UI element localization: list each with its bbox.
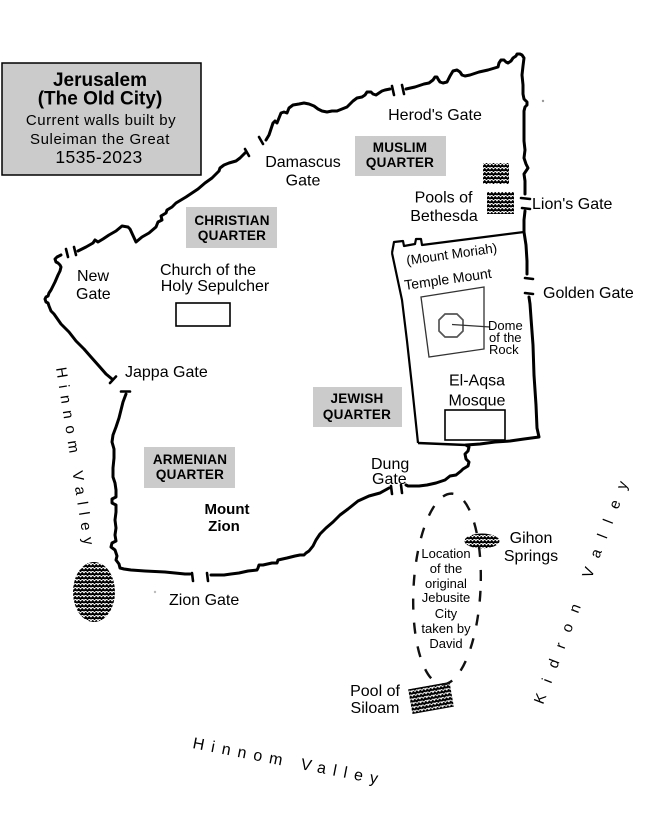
svg-text:Damascus: Damascus [265,154,341,171]
svg-text:(The Old City): (The Old City) [38,89,163,110]
svg-text:Gate: Gate [372,471,407,488]
svg-text:Rock: Rock [489,342,519,357]
svg-text:Zion Gate: Zion Gate [169,592,239,609]
svg-text:Gihon: Gihon [510,530,553,547]
svg-text:Bethesda: Bethesda [410,208,478,225]
svg-text:QUARTER: QUARTER [323,407,391,422]
svg-text:New: New [77,268,109,285]
svg-text:ARMENIAN: ARMENIAN [153,452,227,467]
svg-text:Mount: Mount [205,501,250,518]
svg-text:of the: of the [430,561,463,576]
svg-text:Lion's Gate: Lion's Gate [532,196,613,213]
svg-text:QUARTER: QUARTER [366,155,434,170]
svg-text:Mosque: Mosque [449,393,506,410]
svg-text:Golden Gate: Golden Gate [543,285,634,302]
svg-text:MUSLIM: MUSLIM [373,140,427,155]
svg-text:QUARTER: QUARTER [156,467,224,482]
svg-text:Pools of: Pools of [415,190,473,207]
svg-text:Gate: Gate [76,286,111,303]
svg-text:Gate: Gate [286,173,321,190]
svg-text:David: David [429,636,462,651]
svg-text:El-Aqsa: El-Aqsa [449,373,505,390]
svg-text:Current walls built by: Current walls built by [26,112,176,129]
svg-text:Jappa Gate: Jappa Gate [125,364,208,381]
svg-text:Springs: Springs [504,548,558,565]
svg-text:City: City [435,606,458,621]
svg-text:Jebusite: Jebusite [422,590,470,605]
svg-text:Holy Sepulcher: Holy Sepulcher [161,278,270,295]
svg-text:Pool of: Pool of [350,683,400,700]
svg-text:Siloam: Siloam [351,700,400,717]
svg-text:1535-2023: 1535-2023 [55,147,142,167]
svg-text:Zion: Zion [208,518,240,535]
svg-text:Location: Location [421,546,470,561]
svg-text:Herod's Gate: Herod's Gate [388,107,482,124]
svg-text:JEWISH: JEWISH [331,391,384,406]
svg-text:QUARTER: QUARTER [198,228,266,243]
svg-text:CHRISTIAN: CHRISTIAN [194,213,269,228]
svg-text:Suleiman the Great: Suleiman the Great [30,131,170,148]
svg-text:Church of the: Church of the [160,262,256,279]
svg-text:taken by: taken by [421,621,471,636]
svg-text:original: original [425,576,467,591]
